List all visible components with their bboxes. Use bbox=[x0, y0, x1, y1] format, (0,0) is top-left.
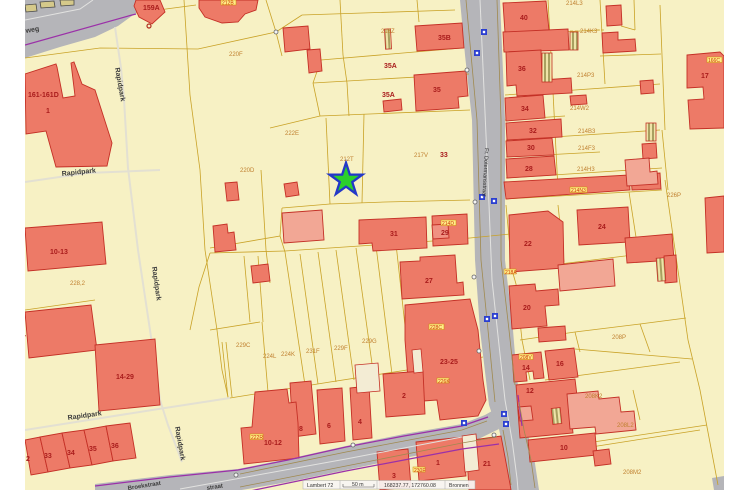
svg-text:226P: 226P bbox=[667, 193, 681, 199]
svg-text:214D: 214D bbox=[442, 221, 454, 227]
svg-text:217V: 217V bbox=[414, 153, 428, 159]
svg-text:214B3: 214B3 bbox=[578, 129, 596, 135]
svg-text:214L3: 214L3 bbox=[566, 1, 583, 7]
svg-text:214N3: 214N3 bbox=[571, 188, 586, 194]
svg-text:29: 29 bbox=[441, 230, 449, 237]
svg-text:12: 12 bbox=[526, 388, 534, 395]
svg-text:35A: 35A bbox=[382, 92, 395, 99]
svg-text:36: 36 bbox=[518, 66, 526, 73]
svg-text:22: 22 bbox=[524, 241, 532, 248]
svg-text:36: 36 bbox=[111, 443, 119, 450]
svg-text:35A: 35A bbox=[384, 63, 397, 70]
svg-text:214K3: 214K3 bbox=[580, 29, 598, 35]
svg-text:Bronnen: Bronnen bbox=[449, 483, 469, 489]
svg-text:3: 3 bbox=[392, 473, 396, 480]
svg-text:30: 30 bbox=[527, 145, 535, 152]
svg-text:220F: 220F bbox=[229, 52, 243, 58]
svg-text:229G: 229G bbox=[362, 339, 377, 345]
svg-text:208M2: 208M2 bbox=[623, 470, 642, 476]
svg-text:10-12: 10-12 bbox=[264, 440, 282, 447]
svg-text:228,2: 228,2 bbox=[70, 281, 86, 287]
svg-text:159A: 159A bbox=[143, 5, 160, 12]
svg-text:8: 8 bbox=[299, 426, 303, 433]
svg-text:230F: 230F bbox=[414, 468, 425, 474]
svg-text:168237.77, 172760.08: 168237.77, 172760.08 bbox=[384, 483, 436, 489]
svg-text:6: 6 bbox=[327, 423, 331, 430]
svg-text:214F3: 214F3 bbox=[578, 146, 596, 152]
svg-text:214H3: 214H3 bbox=[577, 167, 595, 173]
svg-text:35: 35 bbox=[433, 87, 441, 94]
svg-text:229C: 229C bbox=[236, 343, 251, 349]
svg-text:33: 33 bbox=[440, 152, 448, 159]
svg-text:2: 2 bbox=[402, 393, 406, 400]
svg-text:28: 28 bbox=[525, 166, 533, 173]
svg-text:224K: 224K bbox=[281, 352, 295, 358]
svg-text:218A: 218A bbox=[505, 270, 517, 276]
svg-text:1: 1 bbox=[46, 108, 50, 115]
svg-text:222R: 222R bbox=[251, 435, 263, 441]
svg-text:10-13: 10-13 bbox=[50, 249, 68, 256]
svg-text:222E: 222E bbox=[285, 131, 299, 137]
svg-text:208K2: 208K2 bbox=[585, 394, 603, 400]
svg-text:31: 31 bbox=[390, 231, 398, 238]
svg-text:40: 40 bbox=[520, 15, 528, 22]
svg-text:212B: 212B bbox=[222, 1, 234, 7]
svg-text:21: 21 bbox=[483, 461, 491, 468]
svg-text:166C: 166C bbox=[708, 58, 720, 64]
svg-text:33: 33 bbox=[44, 453, 52, 460]
svg-text:34: 34 bbox=[521, 106, 529, 113]
svg-text:27: 27 bbox=[425, 278, 433, 285]
svg-text:23-25: 23-25 bbox=[440, 359, 458, 366]
svg-text:229F: 229F bbox=[334, 346, 348, 352]
svg-text:216Z: 216Z bbox=[381, 29, 395, 35]
svg-text:17: 17 bbox=[701, 73, 709, 80]
svg-text:212T: 212T bbox=[340, 157, 354, 163]
svg-text:Lambert 72: Lambert 72 bbox=[307, 483, 333, 489]
svg-text:35: 35 bbox=[89, 446, 97, 453]
svg-text:14-29: 14-29 bbox=[116, 374, 134, 381]
svg-text:226K: 226K bbox=[438, 379, 450, 385]
svg-text:231F: 231F bbox=[306, 349, 320, 355]
svg-text:208L2: 208L2 bbox=[617, 423, 634, 429]
svg-text:34: 34 bbox=[67, 450, 75, 457]
svg-text:20: 20 bbox=[523, 305, 531, 312]
svg-text:228C: 228C bbox=[430, 325, 442, 331]
svg-text:224L: 224L bbox=[263, 354, 277, 360]
svg-text:2: 2 bbox=[26, 456, 30, 463]
svg-text:208P: 208P bbox=[612, 335, 626, 341]
svg-text:208V: 208V bbox=[520, 355, 532, 361]
svg-text:1: 1 bbox=[436, 460, 440, 467]
svg-text:16: 16 bbox=[556, 361, 564, 368]
svg-text:4: 4 bbox=[358, 419, 362, 426]
svg-text:220D: 220D bbox=[240, 168, 255, 174]
svg-text:214P3: 214P3 bbox=[577, 73, 595, 79]
svg-text:10: 10 bbox=[560, 445, 568, 452]
svg-text:32: 32 bbox=[529, 128, 537, 135]
svg-text:35B: 35B bbox=[438, 35, 451, 42]
svg-text:50 m: 50 m bbox=[352, 482, 364, 488]
svg-text:214W2: 214W2 bbox=[570, 106, 590, 112]
svg-text:161-161D: 161-161D bbox=[28, 92, 59, 99]
svg-text:14: 14 bbox=[522, 365, 530, 372]
svg-text:24: 24 bbox=[598, 224, 606, 231]
